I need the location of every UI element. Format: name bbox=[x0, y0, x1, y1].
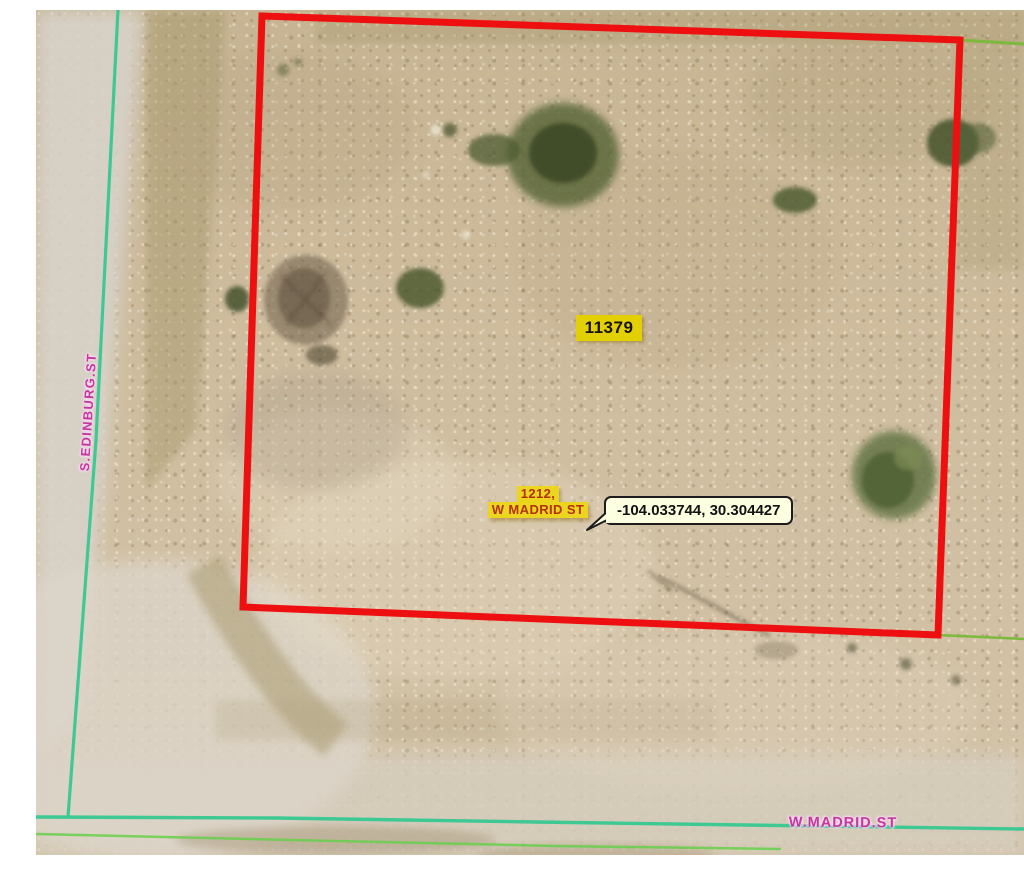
tooltip-tail bbox=[586, 509, 610, 533]
shrub-small bbox=[443, 123, 457, 137]
shrub-cluster bbox=[396, 268, 444, 308]
map-overlay bbox=[36, 10, 1024, 855]
map-viewport: 11379 1212, W MADRID ST -104.033744, 30.… bbox=[0, 0, 1024, 882]
shrub-small bbox=[225, 286, 249, 312]
address-line2: W MADRID ST bbox=[488, 502, 589, 518]
shrub-cluster bbox=[468, 134, 520, 166]
shrub-cluster bbox=[773, 187, 817, 213]
parcel-id-label: 11379 bbox=[576, 315, 642, 341]
shrub-small bbox=[277, 64, 289, 76]
coordinates-tooltip: -104.033744, 30.304427 bbox=[604, 496, 793, 525]
light-soil-patch bbox=[496, 630, 976, 790]
coordinates-text: -104.033744, 30.304427 bbox=[617, 502, 780, 519]
bare-dirt-spot bbox=[423, 172, 429, 178]
aerial-map[interactable]: 11379 1212, W MADRID ST -104.033744, 30.… bbox=[36, 10, 1024, 855]
address-line1: 1212, bbox=[517, 486, 560, 502]
bare-dirt-spot bbox=[431, 125, 441, 135]
shrub-moss-patch bbox=[894, 446, 922, 470]
debris-speck bbox=[951, 675, 961, 685]
debris-speck bbox=[900, 658, 912, 670]
tree-right-edge-outer bbox=[960, 123, 996, 153]
debris-speck bbox=[847, 643, 857, 653]
street-label-w-madrid: W.MADRID.ST bbox=[789, 815, 898, 832]
tree-large-center-core bbox=[529, 123, 597, 183]
pole-shadow-base bbox=[754, 641, 798, 659]
parcel-id-text: 11379 bbox=[585, 318, 634, 338]
bare-dirt-spot bbox=[462, 231, 470, 239]
address-label: 1212, W MADRID ST bbox=[473, 486, 603, 518]
shrub-small bbox=[294, 58, 302, 66]
adjacent-parcel-line-south bbox=[938, 635, 1024, 639]
shrub-small bbox=[306, 345, 338, 365]
